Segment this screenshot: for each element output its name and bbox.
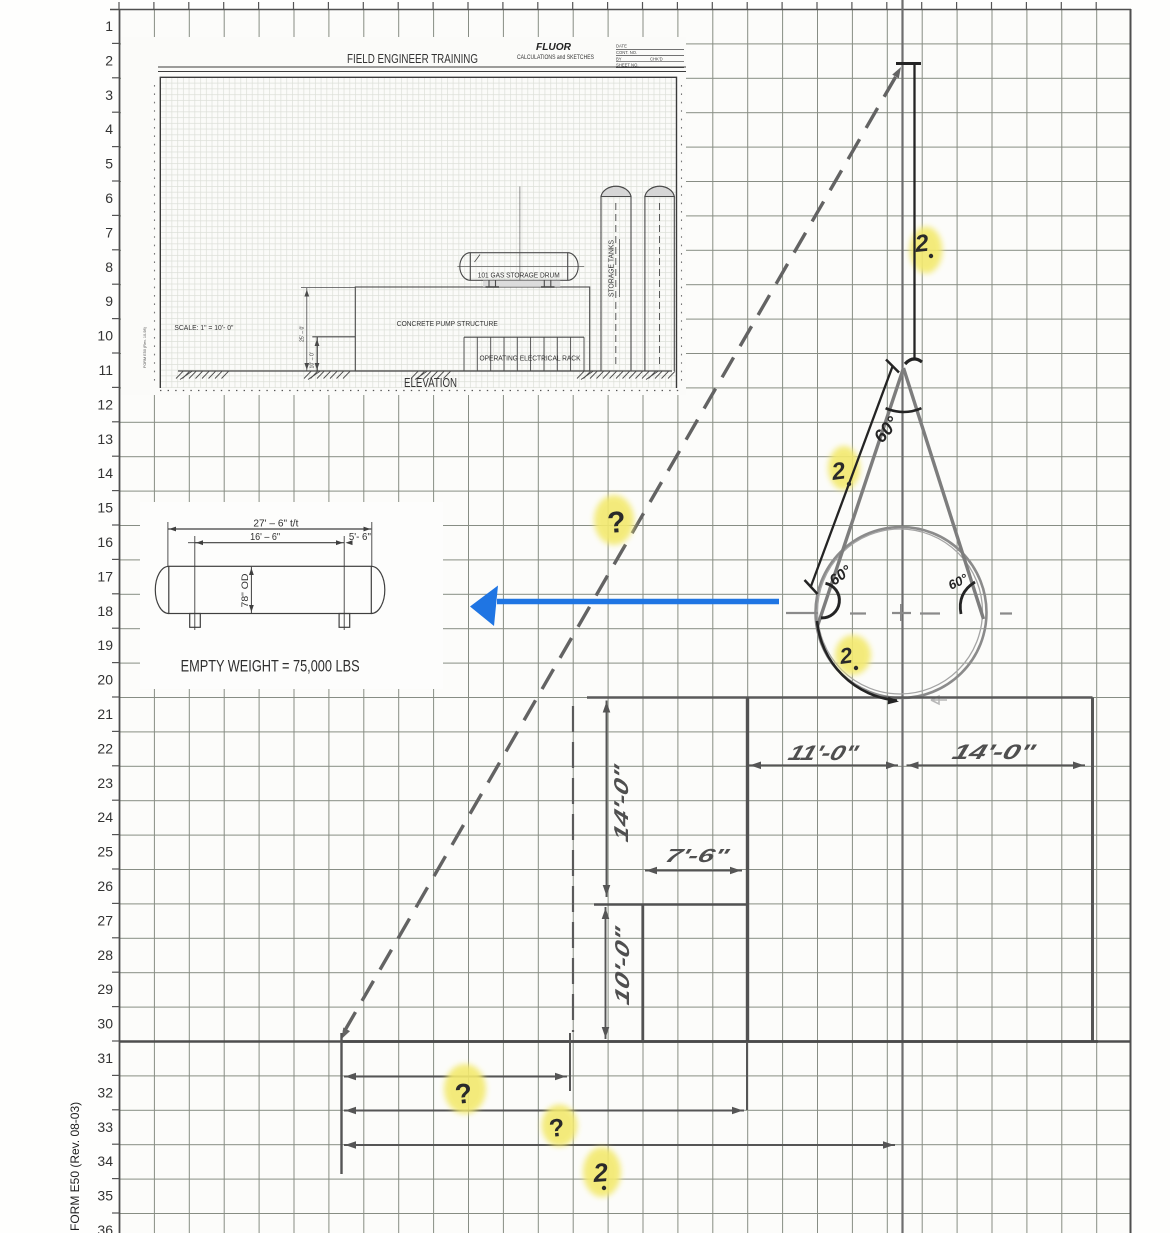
svg-text:78" OD: 78" OD: [240, 573, 251, 607]
svg-text:14'-0": 14'-0": [610, 762, 632, 845]
svg-text:FORM E50 (Rev. 10-98): FORM E50 (Rev. 10-98): [143, 326, 147, 368]
svg-text:15: 15: [97, 500, 113, 516]
svg-text:11: 11: [98, 362, 113, 378]
svg-text:16' – 6": 16' – 6": [250, 531, 280, 543]
svg-text:5: 5: [105, 156, 113, 172]
svg-text:25: 25: [97, 844, 113, 860]
svg-text:3: 3: [105, 87, 113, 103]
svg-text:FORM E50 (Rev. 08-03): FORM E50 (Rev. 08-03): [68, 1102, 82, 1231]
svg-text:17: 17: [97, 568, 113, 584]
svg-text:25' – 0': 25' – 0': [300, 326, 306, 342]
svg-text:BY: BY: [616, 57, 622, 62]
svg-text:?: ?: [453, 1077, 473, 1110]
svg-text:ELEVATION: ELEVATION: [404, 376, 457, 390]
svg-text:?: ?: [606, 506, 627, 540]
svg-text:2: 2: [105, 52, 113, 68]
svg-text:33: 33: [97, 1119, 113, 1135]
svg-text:CALCULATIONS and SKETCHES: CALCULATIONS and SKETCHES: [517, 55, 594, 61]
svg-text:27' – 6" t/t: 27' – 6" t/t: [253, 518, 298, 530]
svg-text:19: 19: [97, 637, 113, 653]
svg-text:OPERATING ELECTRICAL RACK: OPERATING ELECTRICAL RACK: [480, 354, 581, 363]
svg-text:FIELD ENGINEER TRAINING: FIELD ENGINEER TRAINING: [347, 51, 478, 66]
svg-text:10' – 0': 10' – 0': [310, 352, 316, 368]
svg-text:4: 4: [105, 121, 113, 137]
svg-text:2: 2: [591, 1157, 609, 1188]
svg-text:SCALE: 1" = 10'- 0": SCALE: 1" = 10'- 0": [174, 325, 233, 332]
svg-text:28: 28: [97, 947, 113, 963]
svg-text:CONCRETE PUMP STRUCTURE: CONCRETE PUMP STRUCTURE: [397, 319, 498, 328]
svg-text:27: 27: [97, 912, 113, 928]
svg-text:16: 16: [97, 534, 113, 550]
svg-text:10: 10: [97, 328, 113, 344]
svg-text:SHEET NO.: SHEET NO.: [616, 63, 639, 68]
svg-text:STORAGE TANKS: STORAGE TANKS: [607, 240, 616, 297]
svg-text:36: 36: [97, 1222, 113, 1233]
svg-text:32: 32: [97, 1084, 113, 1100]
svg-text:FLUOR: FLUOR: [536, 41, 571, 53]
svg-text:12: 12: [97, 396, 113, 412]
svg-text:31: 31: [97, 1050, 113, 1066]
svg-text:101 GAS STORAGE DRUM: 101 GAS STORAGE DRUM: [478, 273, 560, 280]
svg-text:10'-0": 10'-0": [611, 924, 633, 1008]
svg-text:13: 13: [97, 431, 113, 447]
svg-text:22: 22: [97, 740, 113, 756]
svg-text:14: 14: [97, 465, 113, 481]
svg-text:8: 8: [105, 259, 113, 275]
svg-text:20: 20: [97, 672, 113, 688]
svg-text:7: 7: [105, 224, 113, 240]
svg-text:?: ?: [548, 1114, 566, 1143]
svg-text:29: 29: [97, 981, 113, 997]
svg-text:18: 18: [97, 603, 113, 619]
svg-text:CONT. NO.: CONT. NO.: [616, 50, 637, 55]
svg-text:14'-0": 14'-0": [949, 740, 1039, 763]
svg-text:5'- 6": 5'- 6": [349, 531, 371, 543]
svg-text:9: 9: [105, 293, 113, 309]
svg-text:1: 1: [105, 18, 113, 34]
svg-text:7'-6": 7'-6": [662, 845, 732, 866]
svg-text:DATE: DATE: [616, 44, 627, 49]
svg-text:11'-0": 11'-0": [785, 741, 862, 764]
svg-text:EMPTY WEIGHT = 75,000 LBS: EMPTY WEIGHT = 75,000 LBS: [181, 658, 360, 676]
svg-text:34: 34: [97, 1153, 113, 1169]
svg-text:24: 24: [97, 809, 113, 825]
svg-text:35: 35: [97, 1188, 113, 1204]
svg-text:30: 30: [97, 1016, 113, 1032]
svg-text:6: 6: [105, 190, 113, 206]
svg-text:CHK'D: CHK'D: [650, 57, 663, 62]
svg-text:21: 21: [97, 706, 113, 722]
svg-text:23: 23: [97, 775, 113, 791]
svg-text:26: 26: [97, 878, 113, 894]
